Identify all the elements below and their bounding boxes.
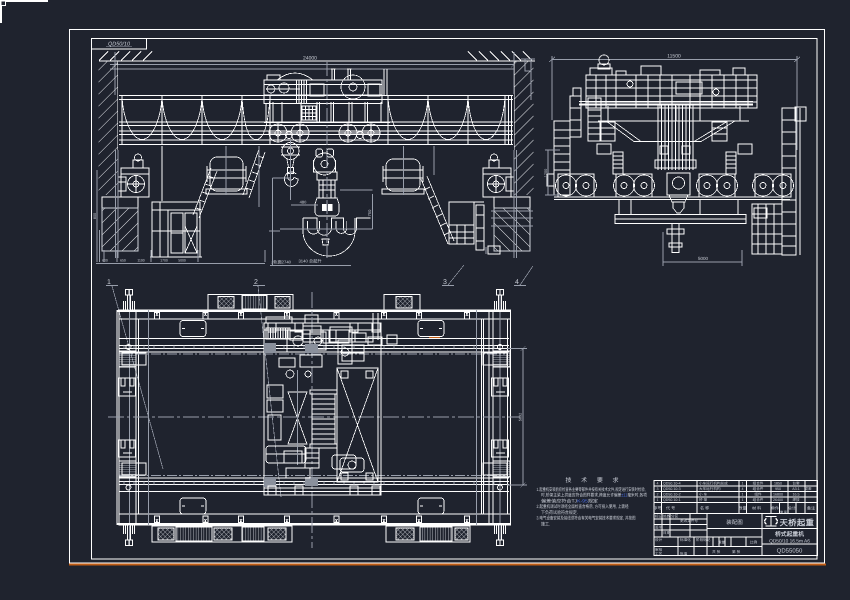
svg-text:5692: 5692: [519, 413, 523, 421]
svg-text:重量: 重量: [718, 541, 726, 545]
svg-text:QD50.10-4: QD50.10-4: [663, 482, 681, 486]
svg-text:组合件: 组合件: [753, 486, 764, 491]
svg-text:1700: 1700: [160, 259, 168, 263]
svg-text:4: 4: [515, 279, 519, 286]
svg-text:2: 2: [254, 279, 258, 286]
svg-text:650: 650: [120, 259, 126, 263]
svg-text:QD50.10-3: QD50.10-3: [663, 487, 681, 491]
svg-text:3140 总起升: 3140 总起升: [298, 259, 321, 264]
svg-text:480: 480: [300, 200, 307, 205]
svg-text:950: 950: [775, 487, 781, 491]
svg-text:设计: 设计: [655, 537, 663, 542]
svg-text:600: 600: [102, 259, 108, 263]
svg-text:3: 3: [443, 279, 447, 286]
svg-text:时,桥架主梁上拱度应符合图样要求,跨度允许偏差±11毫米时,: 时,桥架主梁上拱度应符合图样要求,跨度允许偏差±11毫米时,各项: [541, 493, 647, 498]
svg-text:第 张: 第 张: [732, 549, 741, 554]
svg-text:成套: 成套: [804, 486, 812, 491]
svg-text:16.5: 16.5: [793, 493, 800, 497]
svg-text:下负荷试验符合规定.: 下负荷试验符合规定.: [541, 510, 578, 515]
svg-text:24000: 24000: [303, 56, 317, 62]
svg-text:台套: 台套: [792, 481, 800, 486]
svg-text:签字: 签字: [655, 525, 663, 530]
svg-text:1850: 1850: [774, 482, 782, 486]
svg-text:4: 4: [742, 487, 744, 491]
svg-text:标记: 标记: [655, 514, 663, 519]
svg-text:3.电气设备安装及接线须符合有关电气安装技术要求规定, 并按: 3.电气设备安装及接线须符合有关电气安装技术要求规定, 并按图: [537, 516, 636, 521]
svg-text:材 料: 材 料: [752, 506, 761, 511]
svg-text:1: 1: [657, 498, 659, 502]
svg-text:QD55050: QD55050: [777, 548, 803, 555]
svg-text:组合件: 组合件: [753, 481, 764, 486]
svg-text:1: 1: [107, 279, 111, 286]
svg-text:名 称: 名 称: [700, 506, 709, 511]
svg-text:1100: 1100: [137, 259, 144, 263]
svg-text:1.起重机安装前应检查各主要零部件并按有关技术文件,规定进行: 1.起重机安装前应检查各主要零部件并按有关技术文件,规定进行安装时检验,: [537, 487, 646, 492]
svg-text:800: 800: [93, 213, 97, 219]
svg-text:数量: 数量: [739, 506, 747, 511]
svg-text:组件: 组件: [754, 492, 762, 497]
svg-text:4: 4: [657, 482, 659, 486]
svg-text:共 张: 共 张: [712, 550, 721, 554]
svg-text:5000: 5000: [178, 259, 186, 263]
svg-text:偏差值应符合TJK-95规定: 偏差值应符合TJK-95规定: [541, 498, 598, 503]
svg-text:工艺: 工艺: [655, 551, 663, 556]
svg-text:桥式起重机: 桥式起重机: [775, 531, 804, 538]
svg-text:装配图: 装配图: [726, 519, 743, 526]
svg-text:阶段标记: 阶段标记: [696, 537, 711, 542]
svg-text:小 车: 小 车: [699, 492, 708, 497]
svg-text:单件: 单件: [771, 506, 779, 511]
svg-text:技 术 要 求: 技 术 要 求: [565, 476, 622, 484]
svg-text:1: 1: [742, 482, 744, 486]
svg-text:日期: 日期: [663, 531, 671, 535]
svg-text:标准化: 标准化: [680, 537, 691, 542]
svg-text:1: 1: [742, 493, 744, 497]
svg-text:26400: 26400: [773, 498, 783, 502]
svg-text:11500: 11500: [667, 54, 681, 60]
svg-text:±轨面2740: ±轨面2740: [271, 260, 292, 265]
svg-text:750: 750: [367, 209, 372, 216]
svg-text:5000: 5000: [698, 256, 709, 261]
svg-text:更改文件号: 更改文件号: [680, 518, 698, 523]
svg-text:批准: 批准: [680, 551, 688, 556]
svg-text:处数: 处数: [663, 514, 671, 519]
svg-text:QD50.10-2: QD50.10-2: [663, 493, 681, 497]
svg-text:1: 1: [742, 498, 744, 502]
svg-text:3: 3: [657, 487, 659, 491]
svg-text:16800: 16800: [773, 493, 783, 497]
svg-text:备注: 备注: [807, 506, 815, 511]
svg-text:总计: 总计: [788, 506, 796, 511]
svg-text:焊接: 焊接: [792, 497, 800, 502]
svg-text:施工.: 施工.: [541, 521, 550, 526]
svg-text:天桥起重: 天桥起重: [780, 518, 815, 528]
svg-text:2.起重机调试时须经全面检查合格后, 方可投入使用, 上需经: 2.起重机调试时须经全面检查合格后, 方可投入使用, 上需经: [537, 504, 629, 509]
svg-text:QD50.10-1: QD50.10-1: [663, 498, 681, 502]
svg-text:A3-1: A3-1: [792, 487, 800, 491]
svg-text:组合件: 组合件: [753, 497, 764, 502]
svg-text:分区: 分区: [671, 515, 679, 519]
svg-text:桥 架: 桥 架: [699, 497, 708, 502]
svg-text:代 号: 代 号: [666, 506, 675, 511]
svg-text:大车运行机构: 大车运行机构: [699, 486, 721, 491]
svg-text:QD50/10 16.5m A6: QD50/10 16.5m A6: [769, 539, 810, 545]
svg-text:序号: 序号: [654, 506, 662, 511]
svg-text:1700: 1700: [544, 169, 548, 177]
svg-text:比例: 比例: [750, 540, 758, 545]
svg-text:小车运行机构总成: 小车运行机构总成: [699, 481, 728, 486]
svg-text:2: 2: [657, 493, 659, 497]
